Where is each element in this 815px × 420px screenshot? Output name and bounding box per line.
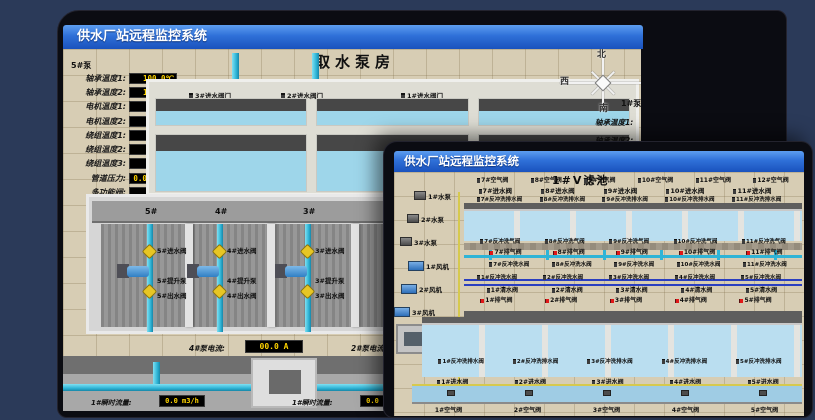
air-valve[interactable]: 4#空气阀 [672,405,699,414]
valve-icon [753,178,756,183]
valve-icon [665,197,668,202]
valve-label: 3#空气阀 [593,407,620,414]
valve-label: 2#排气阀 [550,297,577,304]
alarm-flag-icon [679,251,683,255]
exhaust-valve[interactable]: 7#排气阀 [489,247,521,256]
valve-label: 7#反冲洗水阀 [493,262,529,268]
alarm-flag-icon [489,251,493,255]
blower-label: 3#风机 [412,307,435,317]
valve-icon [477,275,480,280]
bay-pipe [217,224,223,332]
alarm-flag-icon [746,251,750,255]
drain-valve[interactable]: 2#反冲洗排水阀 [513,357,558,365]
drain-valve[interactable]: 3#反冲洗排水阀 [587,357,632,365]
valve-label: 9#空气阀 [588,177,615,184]
valve-label: 7#排气阀 [494,249,521,256]
valve-icon [674,239,677,244]
pipe-gallery: 7#反冲洗气阀8#反冲洗气阀9#反冲洗气阀10#反冲洗气阀11#反冲洗气阀 7#… [464,239,802,311]
back-window-titlebar[interactable]: 供水厂站远程监控系统 [63,25,643,49]
lift-pump-icon[interactable] [285,266,307,277]
inlet-valve[interactable]: 10#进水阀 [666,185,704,195]
top-inlet-valve-row: 7#进水阀8#进水阀9#进水阀10#进水阀11#进水阀 [464,185,786,195]
valve-icon [513,359,516,364]
valve-icon [480,239,483,244]
outlet-valve-label[interactable]: 5#出水阀 [157,290,186,300]
valve-icon [638,178,641,183]
inlet-valve-icon[interactable] [142,244,158,260]
backwash-air-valve[interactable]: 9#反冲洗气阀 [609,237,649,245]
blower-icon [401,284,417,294]
valve-icon [662,359,665,364]
valve-label: 8#反冲洗水阀 [556,262,592,268]
pool-wall [464,203,802,211]
valve-label: 4#反冲洗水阀 [679,275,715,281]
lift-pump-icon[interactable] [197,266,219,277]
valve-icon [742,239,745,244]
backwash-pump[interactable]: 1#水泵 [414,184,470,207]
exhaust-valve[interactable]: 9#排气阀 [616,247,648,256]
inlet-valve-label[interactable]: 4#进水阀 [227,245,256,255]
bottom-drain-valve-row: 1#反冲洗排水阀2#反冲洗排水阀3#反冲洗排水阀4#反冲洗排水阀5#反冲洗排水阀 [424,357,796,365]
valve-label: 3#清水阀 [620,287,647,294]
valve-icon [741,275,744,280]
pump-label: 2#水泵 [421,214,444,224]
valve-label: 3#排气阀 [615,297,642,304]
exhaust-valve[interactable]: 1#排气阀 [480,295,512,304]
valve-label: 10#反冲洗气阀 [678,239,718,245]
valve-icon [587,359,590,364]
pump-icon [407,214,419,223]
valve-label: 12#空气阀 [757,177,788,184]
bay-pipe [305,224,311,332]
valve-label: 9#反冲洗气阀 [613,239,649,245]
bay-pipe [147,224,153,332]
valve-label: 1#清水阀 [491,287,518,294]
drain-valve[interactable]: 5#反冲洗排水阀 [736,357,781,365]
pump-room: 5#4#3#2# 5#进水阀 5#提升泵 5#出水阀 [86,194,421,334]
inlet-valve-label[interactable]: 3#进水阀 [315,245,344,255]
cell-dividers [422,325,802,377]
valve-icon [759,390,767,396]
alarm-flag-icon [610,299,614,303]
air-valve[interactable]: 9#空气阀 [584,175,615,184]
outlet-valve-icon[interactable] [142,284,158,300]
valve-label: 2#清水阀 [556,287,583,294]
inlet-valve-icon[interactable] [300,244,316,260]
valve-icon [552,288,555,293]
valve-icon [487,288,490,293]
pump5-panel-header: 5#泵 [71,60,91,71]
valve-label: 8#进水阀 [545,187,574,195]
air-valve[interactable]: 12#空气阀 [753,175,788,184]
drain-valve[interactable]: 1#反冲洗排水阀 [438,357,483,365]
backwash-water-valve[interactable]: 3#反冲洗水阀 [609,273,649,281]
clean-water-valve[interactable]: 3#清水阀 [616,285,647,294]
sensor-label: 电机温度2: [63,116,129,127]
valve-icon [736,359,739,364]
lift-pump-label[interactable]: 5#提升泵 [157,275,186,285]
alarm-flag-icon [616,251,620,255]
valve-label: 4#排气阀 [680,297,707,304]
valve-label: 2#反冲洗水阀 [547,275,583,281]
compass-north: 北 [597,49,606,60]
backwash-water-valve[interactable]: 10#反冲洗水阀 [677,260,721,268]
air-valve[interactable]: 10#空气阀 [638,175,673,184]
alarm-flag-icon [675,299,679,303]
air-valve[interactable]: 5#空气阀 [751,405,778,414]
valve-icon [666,189,669,194]
backwash-air-valve-row-top: 7#反冲洗气阀8#反冲洗气阀9#反冲洗气阀10#反冲洗气阀11#反冲洗气阀 [468,237,798,245]
clean-water-valve[interactable]: 4#清水阀 [681,285,712,294]
valve-label: 10#排气阀 [684,249,715,256]
valve-icon [609,239,612,244]
valve-icon [743,262,746,267]
pump-bay: 3#进水阀 3#提升泵 3#出水阀 [281,224,363,332]
air-valve[interactable]: 8#空气阀 [531,175,562,184]
sensor-label: 绕组温度1: [63,130,129,141]
valve-icon [696,178,699,183]
sensor-label: 管道压力: [63,173,129,184]
drain-valve[interactable]: 11#反冲洗排水阀 [732,195,781,203]
valve-label: 9#进水阀 [608,187,637,195]
sensor-label: 绕组温度2: [63,144,129,155]
blower-icon [408,261,424,271]
bottom-air-valve-row: 1#空气阀2#空气阀3#空气阀4#空气阀5#空气阀 [409,405,804,414]
exhaust-valve[interactable]: 11#排气阀 [746,247,782,256]
valve-icon [540,197,543,202]
air-valve-icon-slot[interactable] [759,390,767,398]
valve-label: 11#排气阀 [751,249,782,256]
top-air-valve-row: 7#空气阀8#空气阀9#空气阀10#空气阀11#空气阀12#空气阀 [466,175,800,184]
sensor-label: 轴承温度1: [63,73,129,84]
valve-label: 5#反冲洗排水阀 [740,359,781,365]
blower[interactable]: 1#风机 [408,254,470,277]
valve-icon [584,178,587,183]
air-valve[interactable]: 1#空气阀 [435,405,462,414]
drain-valve[interactable]: 10#反冲洗排水阀 [665,195,714,203]
valve-icon [746,288,749,293]
valve-label: 4#反冲洗排水阀 [666,359,707,365]
valve-label: 11#空气阀 [700,177,731,184]
valve-label: 10#空气阀 [642,177,673,184]
backwash-water-valve[interactable]: 7#反冲洗水阀 [489,260,529,268]
valve-label: 5#排气阀 [744,297,771,304]
valve-icon [479,189,482,194]
pump4-current-label: 4#泵电流: [189,343,225,354]
valve-icon [603,390,611,396]
air-valve[interactable]: 3#空气阀 [593,405,620,414]
front-window-titlebar[interactable]: 供水厂站远程监控系统 [394,151,804,172]
cabinet-panel-icon [404,332,422,346]
pump-bays: 5#进水阀 5#提升泵 5#出水阀 4#进水阀 4#提升泵 4#出水阀 [89,197,418,331]
pool-water [422,325,802,377]
sensor-label: 轴承温度1: [595,117,641,128]
exhaust-valve[interactable]: 4#排气阀 [675,295,707,304]
valve-label: 9#排气阀 [621,249,648,256]
valve-label: 10#进水阀 [670,187,704,195]
blower-label: 1#风机 [426,261,449,271]
pump2-current-label: 2#泵电流: [351,343,387,354]
inlet-valve[interactable]: 11#进水阀 [733,185,771,195]
alarm-flag-icon [480,299,484,303]
backwash-water-valve[interactable]: 11#反冲洗水阀 [743,260,787,268]
pump-label: 3#水泵 [414,237,437,247]
valve-label: 5#清水阀 [750,287,777,294]
inlet-valve[interactable]: 7#进水阀 [479,185,512,195]
valve-label: 8#空气阀 [535,177,562,184]
clean-water-valve[interactable]: 2#清水阀 [552,285,583,294]
outlet-valve-label[interactable]: 4#出水阀 [227,290,256,300]
valve-label: 11#反冲洗气阀 [746,239,786,245]
pump1-panel-header: 1#泵 [621,99,641,108]
valve-label: 7#空气阀 [481,177,508,184]
valve-label: 2#反冲洗排水阀 [517,359,558,365]
lift-pump-icon[interactable] [127,266,149,277]
valve-icon [616,288,619,293]
valve-label: 7#进水阀 [483,187,512,195]
exhaust-valve[interactable]: 8#排气阀 [553,247,585,256]
exhaust-valve[interactable]: 10#排气阀 [679,247,715,256]
alarm-flag-icon [545,299,549,303]
inlet-valve-label[interactable]: 5#进水阀 [157,245,186,255]
flow-meter-icon [269,370,301,394]
valve-icon [545,239,548,244]
flow2-label: 1#瞬时流量: [292,398,333,408]
inlet-valve-icon[interactable] [212,244,228,260]
backwash-air-valve[interactable]: 10#反冲洗气阀 [674,237,718,245]
pool-wall [422,317,802,325]
pump-label: 1#水泵 [428,191,451,201]
outlet-valve-icon[interactable] [212,284,228,300]
valve-icon [602,197,605,202]
valve-icon [477,197,480,202]
sensor-label: 绕组温度3: [63,158,129,169]
valve-icon [477,178,480,183]
backwash-air-valve[interactable]: 7#反冲洗气阀 [480,237,520,245]
backwash-water-valve-row-bottom: 1#反冲洗水阀2#反冲洗水阀3#反冲洗水阀4#反冲洗水阀5#反冲洗水阀 [464,273,794,281]
drain-valve[interactable]: 8#反冲洗排水阀 [540,195,585,203]
valve-icon [489,262,492,267]
alarm-flag-icon [553,251,557,255]
valve-label: 11#反冲洗水阀 [747,262,787,268]
v-filter-scene: 1#V滤池 1#水泵 2#水泵 3#水泵 1#风机 [394,172,804,416]
valve-icon [531,178,534,183]
flow1-display: 0.0 m3/h [159,395,205,407]
air-valve[interactable]: 2#空气阀 [514,405,541,414]
clean-water-valve-row: 1#清水阀2#清水阀3#清水阀4#清水阀5#清水阀 [470,285,794,294]
valve-icon [525,390,533,396]
backwash-air-valve[interactable]: 11#反冲洗气阀 [742,237,786,245]
backwash-water-valve-row-top: 7#反冲洗水阀8#反冲洗水阀9#反冲洗水阀10#反冲洗水阀11#反冲洗水阀 [478,260,798,268]
outlet-valve-label[interactable]: 3#出水阀 [315,290,344,300]
valve-icon [552,262,555,267]
lift-pump-label[interactable]: 4#提升泵 [227,275,256,285]
valve-icon [614,262,617,267]
valve-label: 2#空气阀 [514,407,541,414]
backwash-air-valve[interactable]: 8#反冲洗气阀 [545,237,585,245]
valve-icon [677,262,680,267]
backwash-water-valve[interactable]: 5#反冲洗水阀 [741,273,781,281]
exhaust-valve-row-bottom: 1#排气阀2#排气阀3#排气阀4#排气阀5#排气阀 [464,295,788,304]
air-valve-icon-slot[interactable] [603,390,611,398]
valve-label: 11#进水阀 [737,187,771,195]
compass-west: 西 [560,74,569,87]
valve-icon [541,189,544,194]
valve-label: 3#反冲洗排水阀 [591,359,632,365]
pump4-current-display: 00.0 A [245,340,303,353]
valve-icon [681,288,684,293]
sensor-label: 轴承温度2: [63,87,129,98]
valve-icon [543,275,546,280]
air-valve-icon-slot[interactable] [681,390,689,398]
alarm-flag-icon [739,299,743,303]
air-distribution-channel [412,384,802,404]
channel-valve-icons [412,390,802,398]
valve-icon [681,390,689,396]
lift-pump-label[interactable]: 3#提升泵 [315,275,344,285]
flow1-label: 1#瞬时流量: [91,398,132,408]
exhaust-valve-row-top: 7#排气阀8#排气阀9#排气阀10#排气阀11#排气阀 [474,247,798,256]
inlet-valve[interactable]: 8#进水阀 [541,185,574,195]
valve-icon [604,189,607,194]
blower-icon [394,307,410,317]
pump-icon [400,237,412,246]
valve-icon [675,275,678,280]
top-drain-valve-row: 7#反冲洗排水阀8#反冲洗排水阀9#反冲洗排水阀10#反冲洗排水阀11#反冲洗排… [468,195,790,203]
blower-label: 2#风机 [419,284,442,294]
pump-bay: 4#进水阀 4#提升泵 4#出水阀 [193,224,275,332]
pump-icon [414,191,426,200]
valve-icon [447,390,455,396]
pump1-sensor-panel-partial: 1#泵 轴承温度1: 轴承温度2: [595,91,641,146]
backwash-water-valve[interactable]: 1#反冲洗水阀 [477,273,517,281]
air-valve[interactable]: 7#空气阀 [477,175,508,184]
desktop: 供水厂站远程监控系统 取水泵房 5#泵 轴承温度1: 100.0℃ 轴承温度2:… [0,0,815,420]
backwash-water-valve[interactable]: 8#反冲洗水阀 [552,260,592,268]
outlet-valve-icon[interactable] [300,284,316,300]
clean-water-valve[interactable]: 1#清水阀 [487,285,518,294]
valve-icon [609,275,612,280]
drain-valve[interactable]: 4#反冲洗排水阀 [662,357,707,365]
inlet-valve[interactable]: 9#进水阀 [604,185,637,195]
air-valve[interactable]: 11#空气阀 [696,175,731,184]
window-v-filter: 供水厂站远程监控系统 1#V滤池 1#水泵 2#水泵 3#水泵 [383,141,813,418]
valve-label: 5#反冲洗水阀 [745,275,781,281]
clean-water-valve[interactable]: 5#清水阀 [746,285,777,294]
exhaust-valve[interactable]: 5#排气阀 [739,295,771,304]
manifold-stub-pipe [153,362,160,386]
valve-label: 4#空气阀 [672,407,699,414]
exhaust-valve[interactable]: 2#排气阀 [545,295,577,304]
air-valve-icon-slot[interactable] [525,390,533,398]
backwash-water-valve[interactable]: 9#反冲洗水阀 [614,260,654,268]
valve-label: 8#排气阀 [558,249,585,256]
valve-label: 9#反冲洗水阀 [618,262,654,268]
backwash-water-valve[interactable]: 2#反冲洗水阀 [543,273,583,281]
valve-icon [733,189,736,194]
sensor-label: 电机温度1: [63,101,129,112]
valve-label: 5#空气阀 [751,407,778,414]
valve-label: 7#反冲洗气阀 [484,239,520,245]
valve-label: 1#反冲洗水阀 [481,275,517,281]
valve-label: 1#排气阀 [485,297,512,304]
valve-label: 8#反冲洗气阀 [549,239,585,245]
drain-valve[interactable]: 9#反冲洗排水阀 [602,195,647,203]
valve-label: 1#空气阀 [435,407,462,414]
valve-label: 1#反冲洗排水阀 [442,359,483,365]
air-valve-icon-slot[interactable] [447,390,455,398]
drain-valve[interactable]: 7#反冲洗排水阀 [477,195,522,203]
exhaust-valve[interactable]: 3#排气阀 [610,295,642,304]
valve-label: 3#反冲洗水阀 [613,275,649,281]
scene-title-intake-pump-house: 取水泵房 [315,51,395,72]
valve-label: 10#反冲洗水阀 [681,262,721,268]
backwash-water-valve[interactable]: 4#反冲洗水阀 [675,273,715,281]
backwash-pump[interactable]: 2#水泵 [407,207,470,230]
filter-cells-bottom-row: 1#反冲洗排水阀2#反冲洗排水阀3#反冲洗排水阀4#反冲洗排水阀5#反冲洗排水阀 [422,317,802,375]
valve-icon [732,197,735,202]
valve-label: 4#清水阀 [685,287,712,294]
